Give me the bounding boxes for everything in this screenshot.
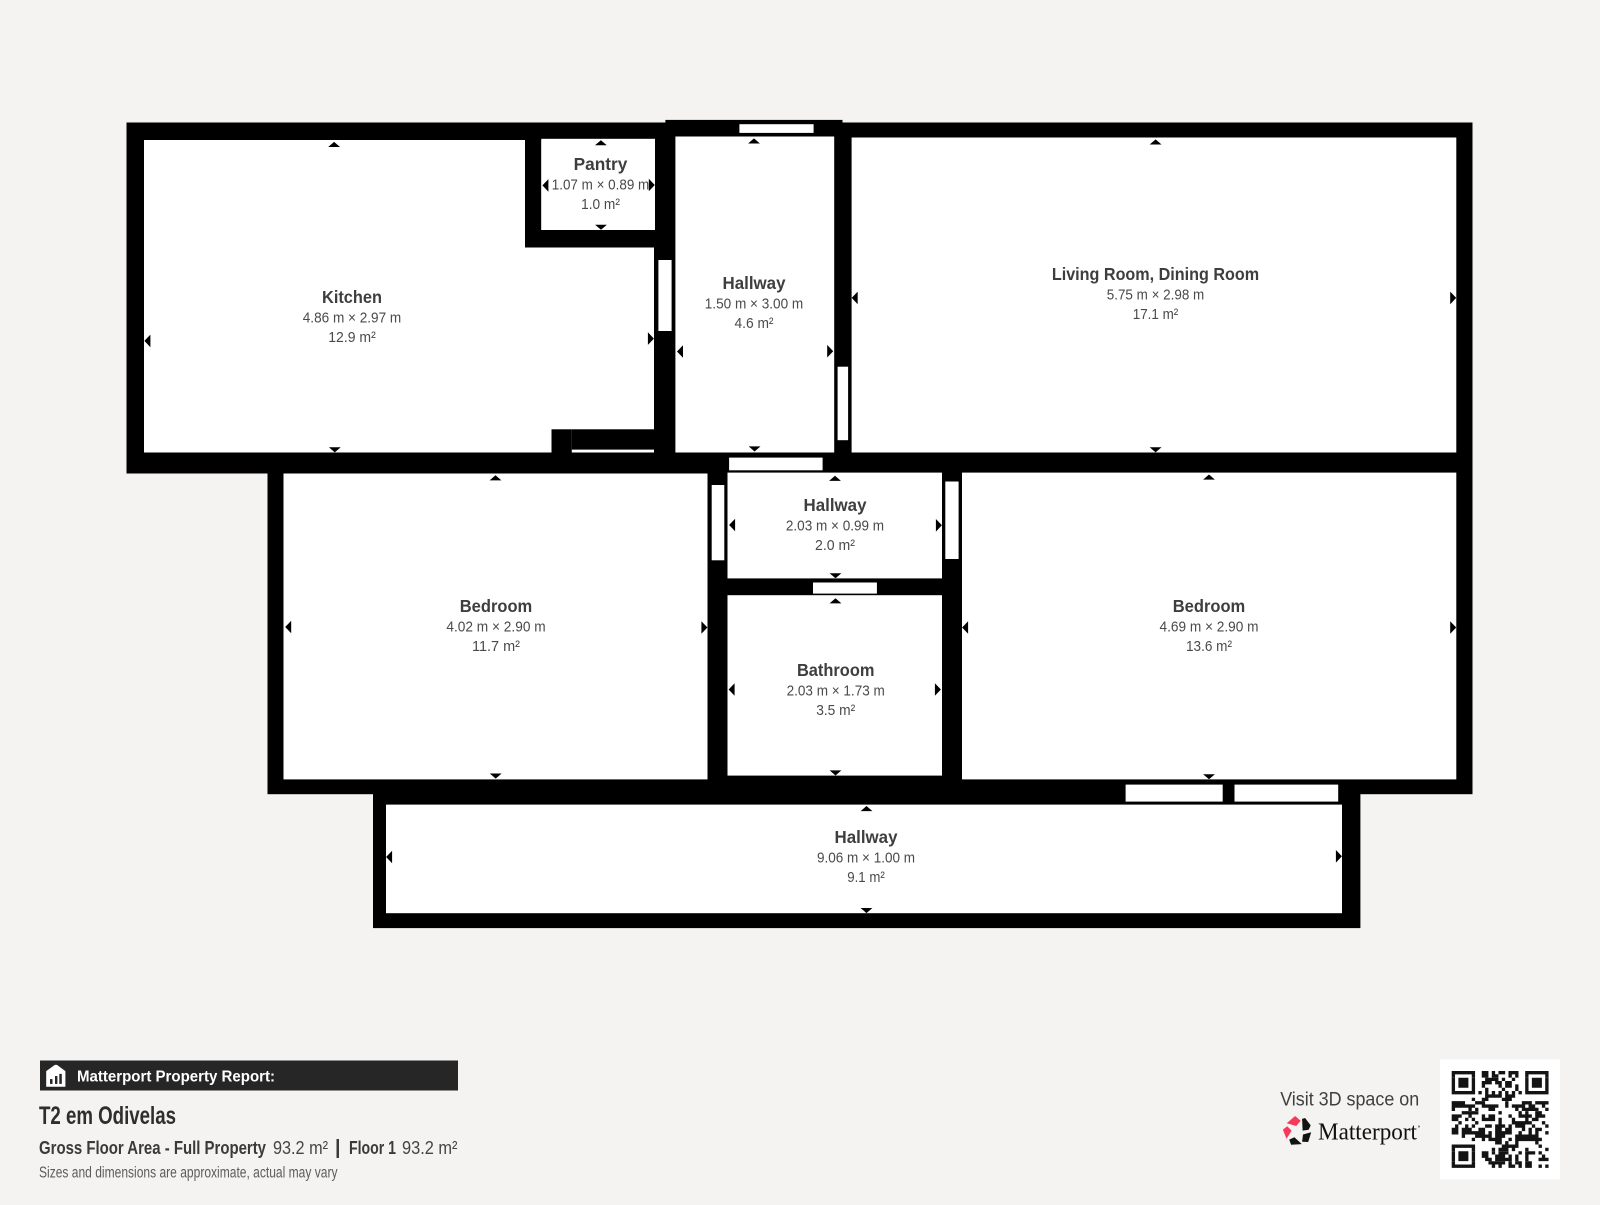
svg-text:13.6 m²: 13.6 m²: [1186, 638, 1232, 655]
svg-text:12.9 m²: 12.9 m²: [328, 329, 376, 346]
svg-text:4.6 m²: 4.6 m²: [735, 315, 774, 332]
svg-text:4.69 m × 2.90 m: 4.69 m × 2.90 m: [1160, 619, 1259, 636]
svg-text:4.02 m × 2.90 m: 4.02 m × 2.90 m: [446, 619, 545, 636]
svg-text:3.5 m²: 3.5 m²: [816, 702, 855, 719]
svg-text:9.1 m²: 9.1 m²: [847, 869, 885, 886]
svg-text:Bedroom: Bedroom: [460, 596, 533, 616]
svg-text:Hallway: Hallway: [804, 495, 867, 515]
svg-text:4.86 m × 2.97 m: 4.86 m × 2.97 m: [303, 310, 402, 327]
svg-text:2.03 m × 1.73 m: 2.03 m × 1.73 m: [787, 683, 885, 700]
svg-text:93.2 m²: 93.2 m²: [402, 1137, 458, 1158]
svg-text:Hallway: Hallway: [835, 827, 898, 847]
svg-text:2.03 m × 0.99 m: 2.03 m × 0.99 m: [786, 517, 884, 534]
svg-text:17.1 m²: 17.1 m²: [1133, 306, 1179, 323]
svg-text:Living Room, Dining Room: Living Room, Dining Room: [1052, 264, 1259, 284]
svg-text:Bedroom: Bedroom: [1173, 596, 1246, 616]
svg-text:Kitchen: Kitchen: [322, 287, 382, 307]
svg-text:11.7 m²: 11.7 m²: [472, 638, 520, 655]
svg-text:Hallway: Hallway: [723, 273, 786, 293]
svg-text:93.2 m²: 93.2 m²: [273, 1137, 328, 1158]
svg-text:Floor 1: Floor 1: [349, 1137, 396, 1158]
svg-text:1.0 m²: 1.0 m²: [581, 196, 620, 213]
svg-text:Bathroom: Bathroom: [797, 660, 875, 680]
svg-text:Sizes and dimensions are appro: Sizes and dimensions are approximate, ac…: [39, 1165, 338, 1182]
svg-text:Visit 3D space on: Visit 3D space on: [1280, 1090, 1419, 1111]
svg-text:2.0 m²: 2.0 m²: [815, 537, 855, 554]
svg-text:’: ’: [1417, 1125, 1420, 1136]
svg-text:1.07 m × 0.89 m: 1.07 m × 0.89 m: [552, 177, 650, 194]
svg-text:9.06 m × 1.00 m: 9.06 m × 1.00 m: [817, 850, 915, 867]
svg-text:Matterport Property Report:: Matterport Property Report:: [77, 1068, 275, 1085]
svg-text:Pantry: Pantry: [574, 154, 628, 174]
svg-text:1.50 m × 3.00 m: 1.50 m × 3.00 m: [705, 296, 804, 313]
svg-text:T2 em Odivelas: T2 em Odivelas: [39, 1102, 176, 1130]
svg-text:Matterport: Matterport: [1318, 1120, 1417, 1146]
svg-text:5.75 m × 2.98 m: 5.75 m × 2.98 m: [1107, 287, 1205, 304]
svg-text:Gross Floor Area - Full Proper: Gross Floor Area - Full Property: [39, 1137, 267, 1158]
